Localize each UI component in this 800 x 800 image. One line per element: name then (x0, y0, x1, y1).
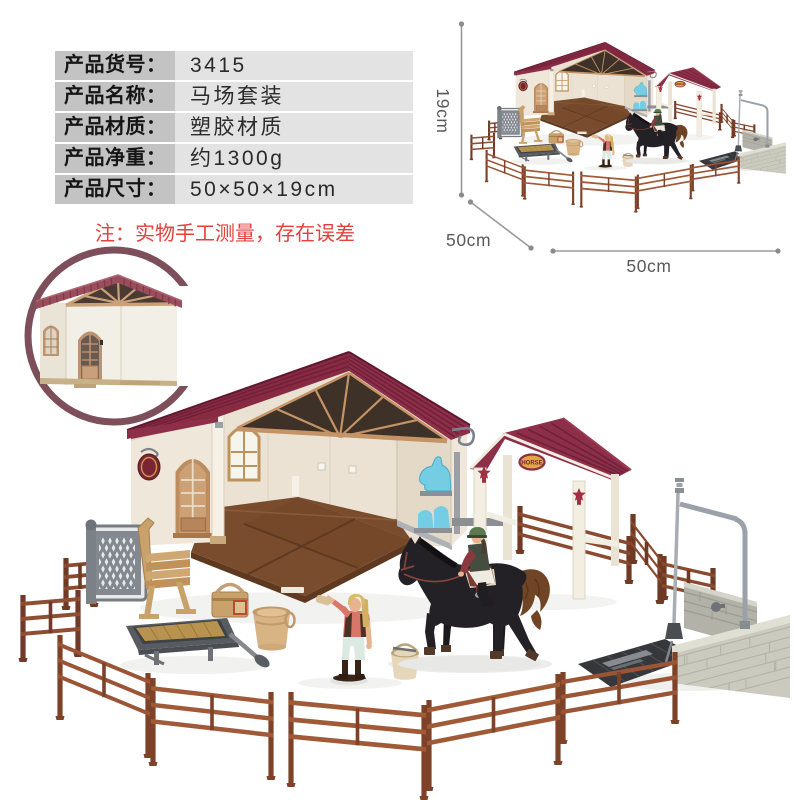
svg-text:19cm: 19cm (433, 88, 453, 133)
svg-text:50cm: 50cm (626, 256, 671, 276)
svg-text:50cm: 50cm (446, 230, 491, 250)
